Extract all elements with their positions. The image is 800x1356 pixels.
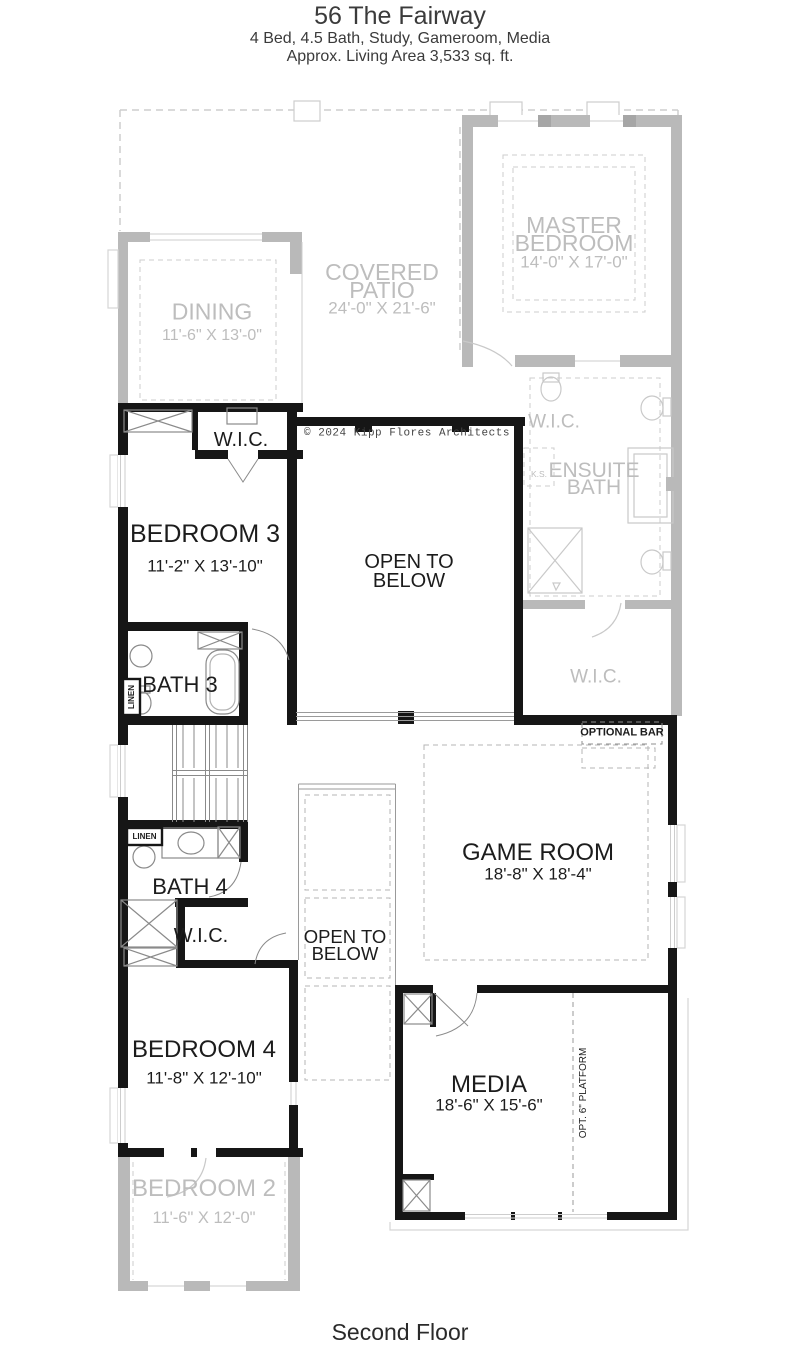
room-label-media: MEDIA bbox=[451, 1073, 527, 1097]
room-label-bedroom-4: BEDROOM 4 bbox=[124, 1040, 284, 1060]
copyright-note: © 2024 Kipp Flores Architects bbox=[304, 429, 510, 440]
opt-platform-label: OPT. 6" PLATFORM bbox=[579, 1048, 589, 1139]
room-dims-covered-patio: 24'-0" X 21'-6" bbox=[328, 300, 435, 317]
room-dims-game-room: 18'-8" X 18'-4" bbox=[484, 866, 591, 883]
floorplan-page: 56 The Fairway 4 Bed, 4.5 Bath, Study, G… bbox=[0, 0, 800, 1356]
room-label-ensuite-bath: ENSUITE BATH bbox=[539, 462, 649, 496]
room-dims-media: 18'-6" X 15'-6" bbox=[435, 1097, 542, 1114]
room-label-wic-master-lower: W.I.C. bbox=[570, 668, 622, 687]
room-label-wic-bedroom4: W.I.C. bbox=[174, 926, 228, 946]
room-label-dining: DINING bbox=[172, 301, 253, 324]
room-label-wic-master-upper: W.I.C. bbox=[528, 413, 580, 432]
floorplan-drawing bbox=[0, 0, 800, 1356]
room-label-bath-3: BATH 3 bbox=[140, 674, 220, 696]
room-label-game-room: GAME ROOM bbox=[462, 841, 614, 865]
room-label-bedroom-2: BEDROOM 2 bbox=[124, 1179, 284, 1199]
room-label-bath-4: BATH 4 bbox=[150, 876, 230, 898]
open-to-below-upper: OPEN TO BELOW bbox=[359, 553, 459, 591]
optional-bar-label: OPTIONAL BAR bbox=[580, 728, 664, 739]
plan-title: 56 The Fairway bbox=[0, 2, 800, 31]
dashed-annotations bbox=[305, 722, 662, 1212]
open-to-below-lower: OPEN TO BELOW bbox=[300, 928, 390, 962]
plan-area-line: Approx. Living Area 3,533 sq. ft. bbox=[0, 48, 800, 66]
floor-name: Second Floor bbox=[0, 1319, 800, 1346]
room-dims-bedroom-4: 11'-8" X 12'-10" bbox=[146, 1070, 262, 1087]
linen-label-bath4: LINEN bbox=[133, 833, 157, 841]
room-dims-bedroom-2: 11'-6" X 12'-0" bbox=[152, 1210, 255, 1227]
stairs bbox=[172, 725, 248, 822]
room-label-bedroom-3: BEDROOM 3 bbox=[125, 522, 285, 546]
room-dims-master-bedroom: 14'-0" X 17'-0" bbox=[520, 254, 627, 271]
room-label-wic-bedroom3: W.I.C. bbox=[214, 430, 268, 450]
room-label-covered-patio: COVERED PATIO bbox=[310, 263, 455, 299]
room-label-master-bedroom: MASTER BEDROOM bbox=[487, 216, 662, 252]
room-dims-bedroom-3: 11'-2" X 13'-10" bbox=[147, 558, 263, 575]
room-dims-dining: 11'-6" X 13'-0" bbox=[162, 328, 262, 344]
linen-label-bath3: LINEN bbox=[128, 685, 136, 709]
plan-subtitle: 4 Bed, 4.5 Bath, Study, Gameroom, Media bbox=[0, 30, 800, 48]
